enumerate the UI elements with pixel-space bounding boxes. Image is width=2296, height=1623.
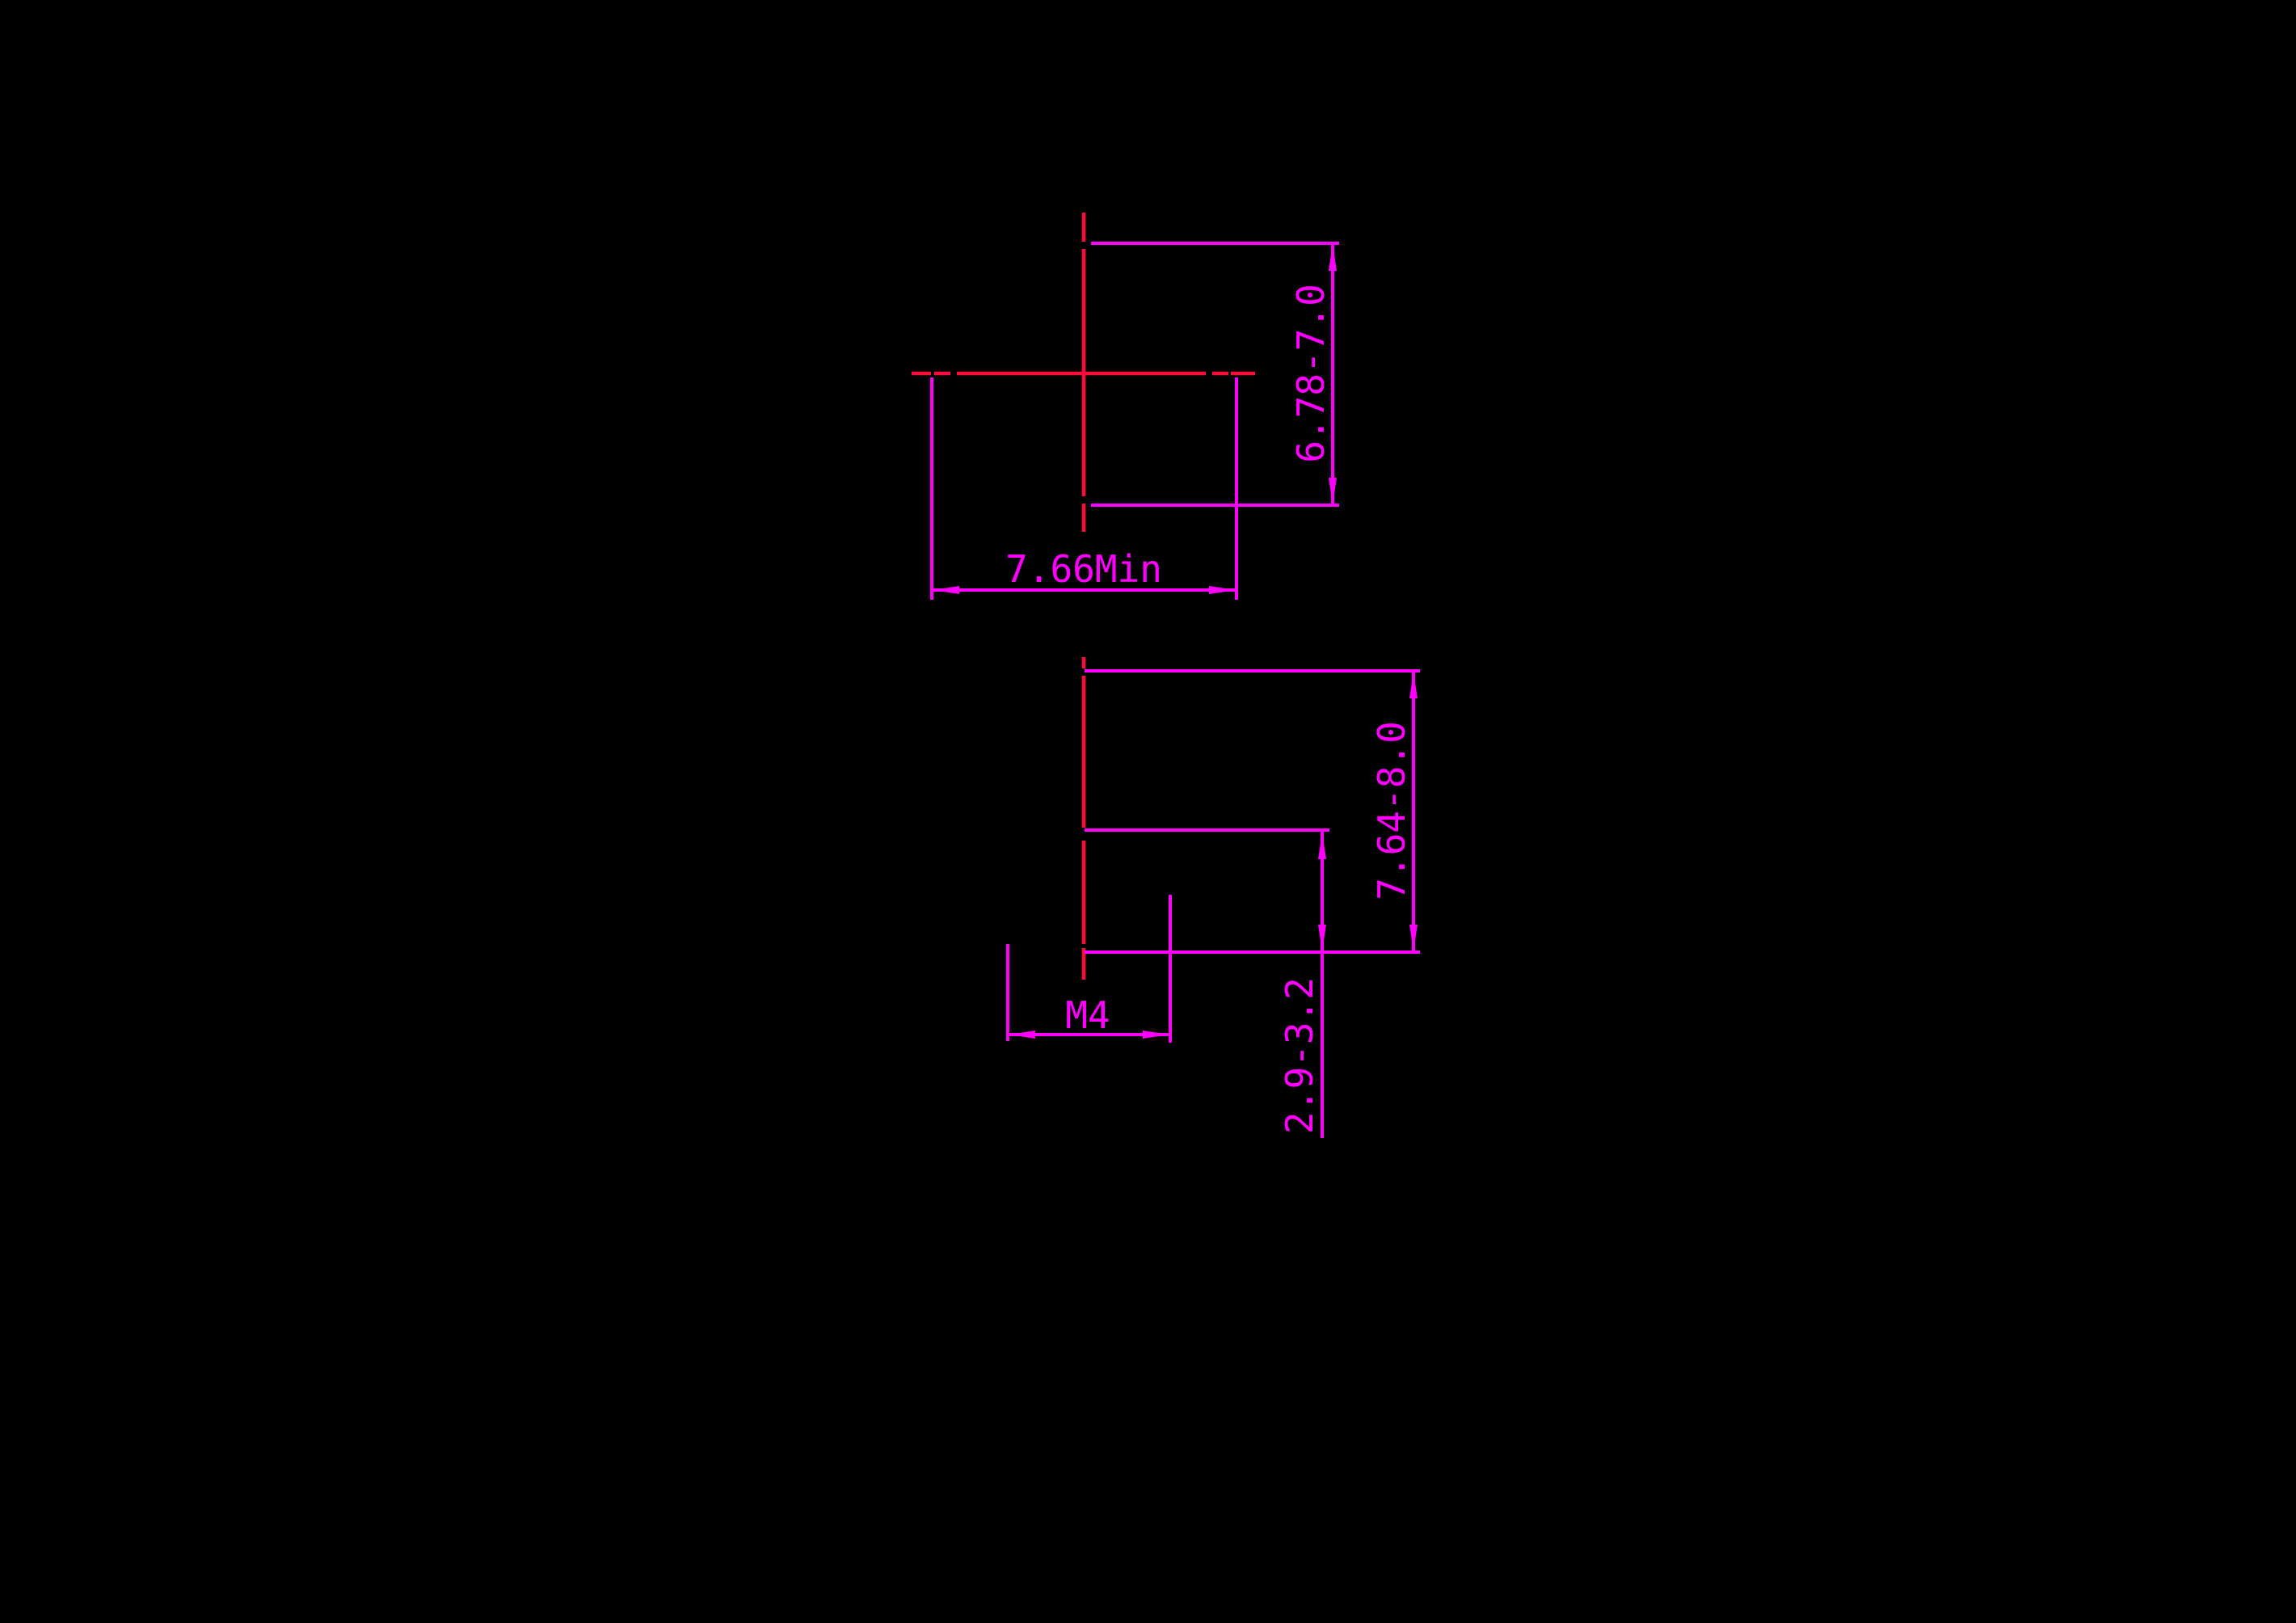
depth-dimension-label: 2.9-3.2 (1278, 977, 1321, 1134)
height-dimension-label: 6.78-7.0 (1289, 284, 1333, 463)
height-arrow-up (1329, 244, 1337, 271)
body-height-dimension-label: 7.64-8.0 (1370, 721, 1413, 900)
height-arrow-down (1329, 478, 1337, 504)
bottom-view: 7.64-8.0 2.9-3.2 M4 (1008, 657, 1420, 1138)
thread-dimension-label: M4 (1065, 993, 1110, 1037)
depth-arrow-down (1318, 925, 1326, 951)
depth-arrow-up (1318, 833, 1326, 859)
dimension-drawing: 6.78-7.0 7.66Min 7.64-8.0 (0, 0, 2296, 1623)
body-height-arrow-down (1409, 925, 1418, 951)
thread-arrow-left (1009, 1031, 1035, 1039)
cad-canvas: 6.78-7.0 7.66Min 7.64-8.0 (0, 0, 2296, 1623)
width-dimension-label: 7.66Min (1005, 547, 1162, 591)
thread-arrow-right (1143, 1031, 1169, 1039)
width-arrow-right (1209, 586, 1236, 594)
top-view: 6.78-7.0 7.66Min (912, 213, 1339, 600)
width-arrow-left (933, 586, 959, 594)
body-height-arrow-up (1409, 672, 1418, 698)
